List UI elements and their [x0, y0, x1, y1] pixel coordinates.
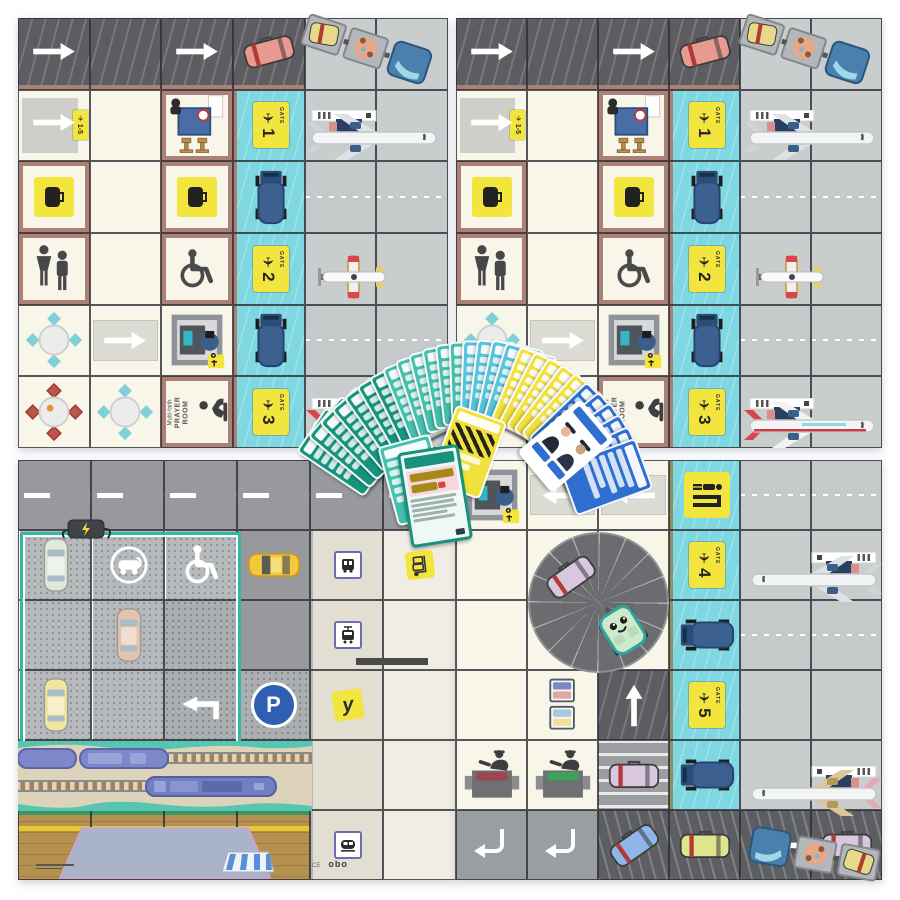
truck-icon — [690, 311, 724, 369]
tile-rail-r5c2 — [91, 740, 164, 810]
tile-apron-r2c5 — [740, 530, 811, 600]
tile-gate-r6c4: GATE✈3 — [233, 376, 305, 448]
tile-cream-r4c2 — [527, 233, 598, 305]
tile-apron-r2c6 — [811, 90, 882, 162]
tile-cream-r3c2 — [527, 600, 598, 670]
tile-hook-left-r6c2 — [527, 810, 598, 880]
tile-hook-left-r6c1 — [456, 810, 527, 880]
tile-arrow-right-r5c2 — [90, 305, 162, 377]
tile-bag-sign-2-r3c3 — [598, 161, 669, 233]
wheelchair-icon — [612, 247, 656, 291]
arrow-right-icon — [542, 332, 584, 349]
tile-rail-r5c1 — [18, 740, 91, 810]
tile-park-r3c1 — [18, 600, 91, 670]
tile-wheelchair-r4c3 — [598, 233, 669, 305]
tile-arrow-right-r1c1 — [18, 18, 90, 90]
tile-apron-r6c5 — [740, 376, 811, 448]
tile-side-r5c5 — [310, 740, 383, 810]
tile-hall-r2c1: ✈ 1-5 — [456, 90, 527, 162]
tile-taxi-r3c5 — [740, 161, 811, 233]
y-logo-sticker: y — [331, 688, 365, 722]
prayer-label: PRAYERROOM — [175, 396, 191, 428]
gate-word: GATE — [714, 251, 720, 269]
truck-icon — [678, 758, 736, 792]
tile-truck-r3c4 — [233, 161, 305, 233]
tile-arrow-up-r4c3 — [598, 670, 669, 740]
gate-sign: GATE✈4 — [689, 542, 725, 588]
tile-apron-r6c6 — [811, 376, 882, 448]
tile-car-mint-r2c1 — [18, 530, 91, 600]
arrow-right-icon — [104, 332, 146, 349]
tile-cream-r3c1 — [456, 600, 527, 670]
tile-turn-left-r4c3 — [164, 670, 237, 740]
tile-cream-r3c2 — [527, 161, 598, 233]
tile-case-blue-r6c3 — [598, 810, 669, 880]
tile-case-yellow-r6c4 — [669, 810, 740, 880]
tile-taxi-r5c6 — [811, 305, 882, 377]
tile-taxi-r3c6 — [811, 600, 882, 670]
tile-passport-red-r5c1 — [456, 740, 527, 810]
tile-cream-r4c1 — [456, 670, 527, 740]
tile-taxi-r5c5 — [305, 305, 377, 377]
arrow-right-icon — [613, 43, 655, 60]
tile-park2-r3c3 — [164, 600, 237, 670]
checkin-desk-icon — [603, 94, 665, 156]
tile-scanner-r5c3 — [598, 305, 669, 377]
gate-word: GATE — [714, 687, 720, 705]
gate-number: 3 — [694, 415, 714, 424]
tile-arrow-right-r1c3 — [161, 18, 233, 90]
tile-cream-r2c2 — [527, 530, 598, 600]
tile-cream-r3c2 — [90, 161, 162, 233]
tile-apron-r4c6 — [376, 233, 448, 305]
tile-droad-r1c2 — [527, 18, 598, 90]
prayer-room: Multi-faithPRAYERROOM — [161, 376, 233, 448]
arrow-right-icon — [176, 43, 218, 60]
tile-apron-r1c6 — [811, 18, 882, 90]
tile-taxi-car-r2c4 — [237, 530, 310, 600]
baggage-sign — [472, 177, 512, 217]
car-icon — [114, 607, 144, 663]
tile-truck-left-r3c4 — [669, 600, 740, 670]
tile-platform-r6c4 — [237, 810, 310, 880]
gate-sign: GATE✈5 — [689, 682, 725, 728]
tile-restroom-r4c1 — [18, 233, 90, 305]
taxi-icon — [246, 551, 302, 579]
gate-number: 3 — [258, 415, 278, 424]
arrow-right-icon — [471, 114, 513, 131]
tile-truck-r5c4 — [669, 305, 740, 377]
tile-cream-r3c3 — [598, 600, 669, 670]
tile-bag-sign-r3c1 — [18, 161, 90, 233]
tile-p-sign-r4c4: P — [237, 670, 310, 740]
truck-icon — [254, 311, 288, 369]
tile-walk-r6c6 — [383, 810, 456, 880]
tile-table-teal-r6c2 — [90, 376, 162, 448]
tile-gate-r6c4: GATE✈3 — [669, 376, 740, 448]
tile-roadv-r3c4 — [237, 600, 310, 670]
tile-park-r4c2 — [91, 670, 164, 740]
tile-platform-r6c1 — [18, 810, 91, 880]
body-scan-sign — [684, 472, 730, 518]
tile-truck-left-r5c4 — [669, 740, 740, 810]
tile-disabled-r2c3 — [164, 530, 237, 600]
luggage-trolley-sticker — [404, 550, 435, 581]
tile-rail-r5c4 — [237, 740, 310, 810]
gate-sign: GATE✈3 — [689, 389, 725, 435]
car-icon — [41, 537, 71, 593]
plane-takeoff-icon: ✈ — [695, 256, 712, 268]
arrow-right-icon — [471, 43, 513, 60]
tile-apron-r2c5 — [305, 90, 377, 162]
tile-vsign-bus-r2c5 — [310, 530, 383, 600]
baggage-sign — [177, 177, 217, 217]
luggage-carts-icon — [543, 677, 583, 733]
tile-hall-r2c1: ✈ 1-5 — [18, 90, 90, 162]
gate-number: 2 — [258, 272, 278, 281]
tile-apron-r2c5 — [740, 90, 811, 162]
gate-number: 1 — [258, 129, 278, 138]
tile-wheelchair-r4c3 — [161, 233, 233, 305]
tile-gate-r2c4: GATE✈4 — [669, 530, 740, 600]
bus-stop-sign — [334, 551, 362, 579]
board-panel-bottom-left: PyCEobo — [18, 460, 456, 880]
wheelchair-icon — [175, 247, 219, 291]
plane-takeoff-icon: ✈ — [695, 552, 712, 564]
restroom-icon — [32, 243, 76, 295]
gate-word: GATE — [278, 394, 284, 412]
tile-platform-r6c2 — [91, 810, 164, 880]
plane-takeoff-icon: ✈ — [695, 113, 712, 125]
gate-number: 1 — [694, 129, 714, 138]
tile-scanner-r5c3 — [161, 305, 233, 377]
train-stop-sign — [334, 831, 362, 859]
tile-apron-r1c5 — [305, 18, 377, 90]
tile-y-sign-r4c5: y — [310, 670, 383, 740]
board-game-photo: ✈ 1-5GATE✈1GATE✈2Multi-faithPRAYERROOMGA… — [0, 0, 900, 900]
plane-takeoff-icon: ✈ — [695, 692, 712, 704]
tile-gate-r4c4: GATE✈2 — [233, 233, 305, 305]
tile-car-pink-r3c2 — [91, 600, 164, 670]
tile-checkin-r2c3 — [598, 90, 669, 162]
gate-sign: GATE✈3 — [253, 389, 289, 435]
tile-table-teal-r5c1 — [18, 305, 90, 377]
turn-left-arrow-icon — [178, 689, 224, 721]
tile-case-lavender-r5c3 — [598, 740, 669, 810]
tile-gate-r2c4: GATE✈1 — [669, 90, 740, 162]
tile-apron-r4c5 — [740, 233, 811, 305]
tile-rail-r5c3 — [164, 740, 237, 810]
tile-apron-r1c5 — [740, 18, 811, 90]
gate-word: GATE — [278, 251, 284, 269]
tile-arrow-right-r1c1 — [456, 18, 527, 90]
tile-ev-sign-r2c2 — [91, 530, 164, 600]
tile-apron-r1c6 — [376, 18, 448, 90]
tile-gate-r4c4: GATE✈2 — [669, 233, 740, 305]
truck-icon — [678, 618, 736, 652]
tile-case-salmon-r1c4 — [233, 18, 305, 90]
tile-platform-r6c3 — [164, 810, 237, 880]
tile-arrow-left-r6c5 — [740, 810, 811, 880]
ev-parking-sign-icon — [108, 544, 150, 586]
plane-takeoff-icon: ✈ — [259, 113, 276, 125]
cafe-table-icon — [25, 383, 83, 441]
tile-passport-green-r5c2 — [527, 740, 598, 810]
car-icon — [41, 677, 71, 733]
checkin-desk-icon — [166, 94, 228, 156]
tile-scan-sign-r1c4 — [669, 460, 740, 530]
kneeling-person-icon — [197, 395, 231, 429]
tile-case-lavender-r6c6 — [811, 810, 882, 880]
arrow-right-icon — [33, 114, 75, 131]
tile-checkin-r2c3 — [161, 90, 233, 162]
gate-sign: GATE✈2 — [253, 246, 289, 292]
parking-sign: P — [251, 682, 297, 728]
gate-sign: GATE✈1 — [689, 102, 725, 148]
arrow-right-icon — [33, 43, 75, 60]
tile-cream-r2c2 — [527, 90, 598, 162]
tile-arrow-right-r1c3 — [598, 18, 669, 90]
plane-takeoff-icon: ✈ — [259, 256, 276, 268]
restroom-icon — [470, 243, 514, 295]
tile-taxi-r3c6 — [811, 161, 882, 233]
tile-taxi-r3c5 — [305, 161, 377, 233]
tile-taxi-r3c5 — [740, 600, 811, 670]
tile-droad-r1c2 — [90, 18, 162, 90]
board-panel-bottom-right: GATE✈4GATE✈5 — [456, 460, 882, 880]
arrow-left-icon — [755, 837, 797, 854]
plane-takeoff-icon: ✈ — [259, 400, 276, 412]
tile-vsign-tram-r3c5 — [310, 600, 383, 670]
tile-roadh-r1c3 — [164, 460, 237, 530]
turn-back-arrow-icon — [472, 825, 512, 865]
tile-prayer-r6c3: Multi-faithPRAYERROOM — [161, 376, 233, 448]
truck-icon — [254, 168, 288, 226]
tile-car-yellow-r4c1 — [18, 670, 91, 740]
tile-vsign-train-r6c5 — [310, 810, 383, 880]
gate-number: 4 — [694, 568, 714, 577]
tile-taxi-r5c5 — [740, 305, 811, 377]
tile-apron-r4c5 — [305, 233, 377, 305]
gate-sign: GATE✈2 — [689, 246, 725, 292]
tile-table-red-r6c1 — [18, 376, 90, 448]
tile-taxi-r1c6 — [811, 460, 882, 530]
cafe-table-icon — [96, 383, 154, 441]
tile-apron-r4c6 — [811, 233, 882, 305]
tile-cream-r2c3 — [598, 530, 669, 600]
tile-trolleys-r4c2 — [527, 670, 598, 740]
plane-takeoff-icon: ✈ — [695, 400, 712, 412]
baggage-sign — [614, 177, 654, 217]
gate-word: GATE — [278, 107, 284, 125]
tile-truck-r3c4 — [669, 161, 740, 233]
tile-apron-r2c6 — [811, 530, 882, 600]
tile-roadh-r1c1 — [18, 460, 91, 530]
tile-roadh-r1c4 — [237, 460, 310, 530]
security-scanner-icon — [605, 311, 663, 369]
tile-case-salmon-r1c4 — [669, 18, 740, 90]
tile-roadh-r1c2 — [91, 460, 164, 530]
turn-back-arrow-icon — [543, 825, 583, 865]
tile-walk-r5c6 — [383, 740, 456, 810]
gates-1-5-sign: ✈ 1-5 — [73, 110, 88, 140]
tile-walk-r3c6 — [383, 600, 456, 670]
kneeling-person-icon — [633, 395, 667, 429]
passport-desk-icon — [463, 748, 521, 802]
tile-cream-r4c2 — [90, 233, 162, 305]
gate-word: GATE — [714, 107, 720, 125]
gate-word: GATE — [714, 547, 720, 565]
passport-desk-icon — [534, 748, 592, 802]
cafe-table-icon — [25, 311, 83, 369]
tile-bag-sign-r3c1 — [456, 161, 527, 233]
tile-apron-r5c5 — [740, 740, 811, 810]
tile-apron-r5c6 — [811, 740, 882, 810]
tile-gate-r2c4: GATE✈1 — [233, 90, 305, 162]
tile-walk-r4c6 — [383, 670, 456, 740]
tile-cream-r2c1 — [456, 530, 527, 600]
tile-bag-sign-2-r3c3 — [161, 161, 233, 233]
tile-restroom-r4c1 — [456, 233, 527, 305]
wheelchair-icon — [180, 543, 224, 587]
gate-word: GATE — [714, 394, 720, 412]
tile-taxi-r3c6 — [376, 161, 448, 233]
tile-apron-r2c6 — [376, 90, 448, 162]
tile-gate-r4c4: GATE✈5 — [669, 670, 740, 740]
gate-number: 5 — [694, 708, 714, 717]
gate-sign: GATE✈1 — [253, 102, 289, 148]
tram-stop-sign — [334, 621, 362, 649]
tile-truck-r5c4 — [233, 305, 305, 377]
tile-apron-r4c5 — [740, 670, 811, 740]
truck-icon — [690, 168, 724, 226]
arrow-up-icon — [625, 684, 642, 726]
tile-taxi-r1c5 — [740, 460, 811, 530]
tile-cream-r2c2 — [90, 90, 162, 162]
tile-apron-r4c6 — [811, 670, 882, 740]
gate-number: 2 — [694, 272, 714, 281]
security-scanner-icon — [168, 311, 226, 369]
baggage-sign — [34, 177, 74, 217]
